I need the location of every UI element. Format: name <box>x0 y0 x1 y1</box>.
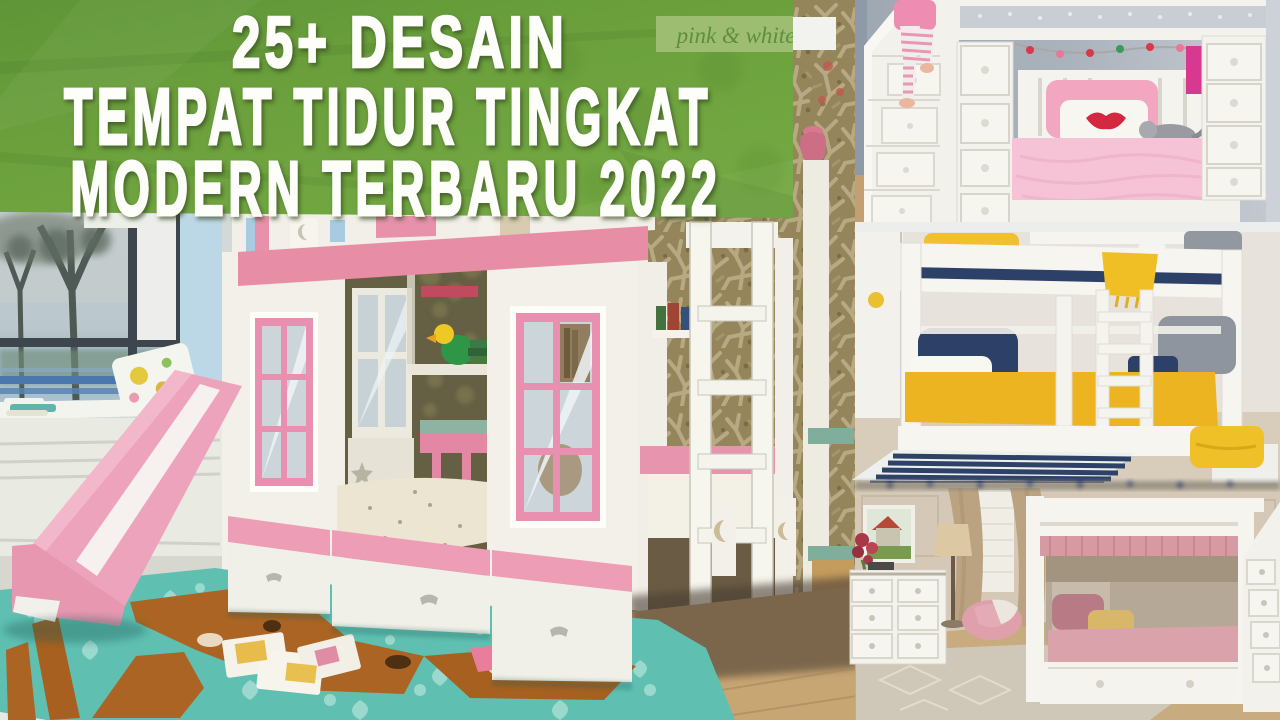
svg-text:pink & white: pink & white <box>675 23 796 48</box>
svg-text:MODERN TERBARU 2022: MODERN TERBARU 2022 <box>71 146 722 232</box>
svg-text:25+ DESAIN: 25+ DESAIN <box>232 3 568 83</box>
